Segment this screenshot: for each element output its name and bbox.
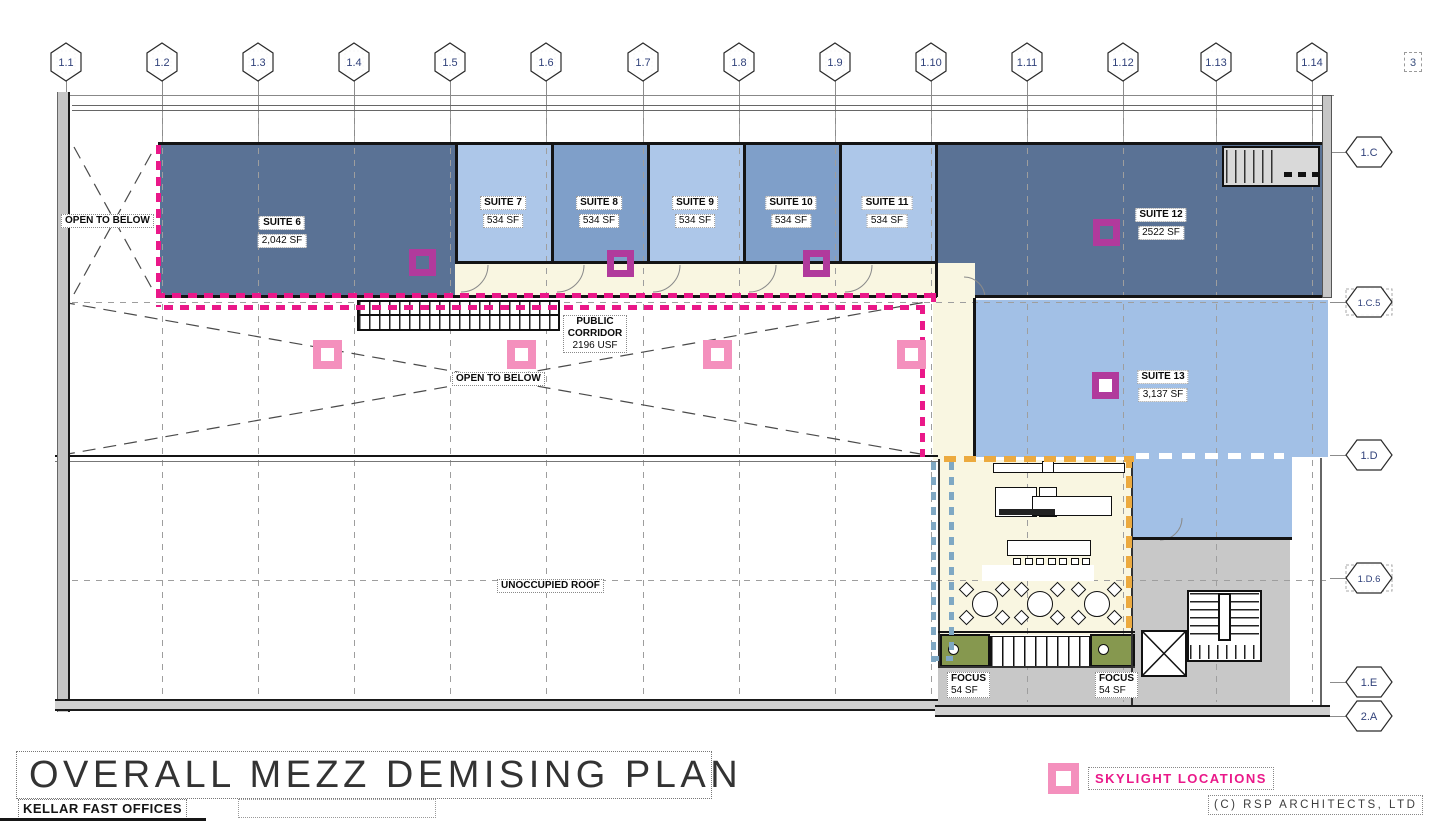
- sheet-number-tag: 3: [1404, 52, 1422, 72]
- wall-segment: [72, 110, 1330, 111]
- stair-dashed-edge: [1284, 172, 1318, 177]
- grid-column-bubble: 1.2: [145, 42, 179, 82]
- grid-line-vertical: [546, 112, 547, 702]
- unoccupied-roof-label: UNOCCUPIED ROOF: [497, 579, 604, 593]
- grid-column-label: 1.4: [346, 57, 361, 69]
- grid-line-vertical: [1123, 112, 1124, 702]
- demising-line-orange: [1126, 456, 1132, 636]
- stair-flight: [1231, 593, 1259, 641]
- wall-segment: [938, 631, 1135, 633]
- suite-8-name: SUITE 8: [576, 196, 622, 210]
- wall-segment: [55, 461, 938, 462]
- suite-6-label: SUITE 62,042 SF: [258, 212, 307, 248]
- suite-13-extension-region: [1133, 456, 1292, 540]
- stair-flight: [1190, 593, 1218, 641]
- grid-row-bubble: 2.A: [1345, 699, 1395, 733]
- focus-room-label: FOCUS 54 SF: [947, 672, 990, 698]
- grid-line-vertical: [739, 112, 740, 702]
- suite-13-area: 3,137 SF: [1139, 388, 1188, 402]
- focus-room-label: FOCUS 54 SF: [1095, 672, 1138, 698]
- demising-line-blue: [949, 462, 954, 654]
- grid-column-label: 1.9: [827, 57, 842, 69]
- suite-13-name: SUITE 13: [1137, 370, 1188, 384]
- grid-line-vertical: [162, 112, 163, 702]
- stair-rail: [357, 314, 560, 316]
- wall-segment: [839, 145, 842, 263]
- wall-segment: [58, 95, 1334, 96]
- grid-line-vertical: [835, 112, 836, 702]
- chair: [1036, 558, 1044, 565]
- grid-column-bubble: 1.10: [914, 42, 948, 82]
- copyright-note: (C) RSP ARCHITECTS, LTD: [1208, 795, 1423, 815]
- demising-line-blue: [931, 462, 936, 662]
- grid-row-leader: [1330, 716, 1346, 717]
- chair: [1013, 558, 1021, 565]
- wall-segment: [743, 145, 746, 263]
- skylight-marker: [897, 340, 926, 369]
- grid-column-bubble: 1.12: [1106, 42, 1140, 82]
- grid-row-leader: [1330, 682, 1346, 683]
- grid-column-bubble: 1.7: [626, 42, 660, 82]
- wall-segment: [72, 105, 1330, 106]
- project-name: KELLAR FAST OFFICES: [18, 799, 187, 819]
- grid-column-label: 1.1: [58, 57, 73, 69]
- chair: [1025, 558, 1033, 565]
- wall-segment: [938, 666, 1135, 668]
- focus-room-area: 54 SF: [951, 685, 986, 697]
- grid-row-label: 1.D: [1360, 450, 1377, 462]
- wall-segment: [975, 295, 1330, 298]
- wall-segment: [938, 459, 940, 668]
- suite-6-area: 2,042 SF: [258, 234, 307, 248]
- chair: [1048, 558, 1056, 565]
- elevator-shaft: [1141, 630, 1187, 677]
- suite-6-name: SUITE 6: [259, 216, 305, 230]
- drawing-title-box: OVERALL MEZZ DEMISING PLAN: [16, 751, 712, 799]
- chair: [1082, 558, 1090, 565]
- open-to-below-label: OPEN TO BELOW: [61, 214, 154, 228]
- wall-segment: [647, 145, 650, 263]
- grid-row-bubble: 1.C.5: [1345, 285, 1395, 319]
- demising-line-blue: [931, 656, 953, 661]
- grid-column-label: 1.7: [635, 57, 650, 69]
- open-to-below-label: OPEN TO BELOW: [452, 372, 545, 386]
- grid-row-bubble: 1.C: [1345, 135, 1395, 169]
- focus-room-area: 54 SF: [1099, 685, 1134, 697]
- grid-column-label: 1.12: [1112, 57, 1133, 69]
- stair-landing: [1218, 593, 1231, 641]
- suite-12-label: SUITE 122522 SF: [1135, 204, 1186, 240]
- grid-row-bubble: 1.D: [1345, 438, 1395, 472]
- grid-line-horizontal: [60, 580, 1332, 581]
- suite-10-label: SUITE 10534 SF: [765, 192, 816, 228]
- wall-segment: [973, 298, 976, 458]
- skylight-marker: [703, 340, 732, 369]
- drawing-title: OVERALL MEZZ DEMISING PLAN: [17, 752, 711, 798]
- skylight-legend-icon: [1048, 763, 1079, 794]
- grid-row-label: 1.E: [1361, 677, 1378, 689]
- suite-11-label: SUITE 11534 SF: [862, 192, 913, 228]
- suite-7-name: SUITE 7: [480, 196, 526, 210]
- suite-9-label: SUITE 9534 SF: [672, 192, 718, 228]
- chair: [1059, 558, 1067, 565]
- focus-table: [1098, 644, 1109, 655]
- chair: [1071, 558, 1079, 565]
- grid-column-bubble: 1.8: [722, 42, 756, 82]
- grid-line-horizontal: [60, 302, 1332, 303]
- focus-room-name: FOCUS: [1099, 673, 1134, 684]
- suite-10-area: 534 SF: [771, 214, 811, 228]
- floor-highlight: [982, 565, 1094, 581]
- wall-segment: [935, 145, 938, 297]
- grid-column-bubble: 1.9: [818, 42, 852, 82]
- suite-7-area: 534 SF: [483, 214, 523, 228]
- counter-edge: [999, 509, 1055, 515]
- public-corridor-name: PUBLIC CORRIDOR: [568, 316, 622, 339]
- demising-line-magenta: [164, 305, 925, 310]
- grid-row-leader: [1330, 302, 1346, 303]
- focus-room-region: [1090, 634, 1135, 667]
- grid-line-vertical: [258, 112, 259, 702]
- grid-column-bubble: 1.1: [49, 42, 83, 82]
- grid-column-bubble: 1.4: [337, 42, 371, 82]
- kitchen-counter: [993, 463, 1125, 473]
- suite-9-name: SUITE 9: [672, 196, 718, 210]
- floor-plan-sheet: SUITE 62,042 SFSUITE 7534 SFSUITE 8534 S…: [0, 0, 1437, 838]
- grid-row-leader: [1330, 455, 1346, 456]
- wall-segment: [455, 145, 458, 263]
- grid-column-bubble: 1.3: [241, 42, 275, 82]
- demising-line-magenta: [156, 145, 161, 307]
- wall-segment: [455, 261, 935, 264]
- grid-column-label: 1.3: [250, 57, 265, 69]
- corridor-lobby-region: [933, 297, 975, 460]
- round-table: [1027, 591, 1053, 617]
- grid-column-label: 1.5: [442, 57, 457, 69]
- grid-row-label: 2.A: [1361, 711, 1378, 723]
- grid-column-bubble: 1.6: [529, 42, 563, 82]
- grid-line-vertical: [354, 112, 355, 702]
- grid-column-bubble: 1.5: [433, 42, 467, 82]
- grid-row-label: 1.D.6: [1358, 574, 1381, 585]
- public-corridor-region: [455, 263, 975, 297]
- wall-segment: [1320, 458, 1322, 710]
- exterior-wall-right: [1322, 95, 1332, 298]
- demising-line-white: [1136, 453, 1284, 459]
- suite-12-area: 2522 SF: [1138, 226, 1184, 240]
- grid-row-leader: [1330, 152, 1346, 153]
- title-block-extension-box: [238, 799, 436, 818]
- grid-row-label: 1.C.5: [1358, 298, 1381, 309]
- suite-8-label: SUITE 8534 SF: [576, 192, 622, 228]
- grid-line-vertical: [1027, 112, 1028, 702]
- grid-column-label: 1.10: [920, 57, 941, 69]
- suite-11-area: 534 SF: [867, 214, 907, 228]
- suite-13-label: SUITE 133,137 SF: [1137, 366, 1188, 402]
- skylight-marker: [313, 340, 342, 369]
- long-table: [1007, 540, 1091, 556]
- grid-line-vertical: [643, 112, 644, 702]
- skylight-legend-label: SKYLIGHT LOCATIONS: [1088, 767, 1274, 790]
- grid-column-label: 1.14: [1301, 57, 1322, 69]
- wall-segment: [551, 145, 554, 263]
- skylight-marker: [803, 250, 830, 277]
- suite-11-name: SUITE 11: [862, 196, 913, 210]
- grid-column-bubble: 1.11: [1010, 42, 1044, 82]
- grid-column-label: 1.2: [154, 57, 169, 69]
- demising-line-magenta: [920, 305, 925, 457]
- grid-column-label: 1.11: [1017, 57, 1038, 69]
- stair-treads: [1226, 150, 1280, 183]
- skylight-marker: [507, 340, 536, 369]
- demising-line-magenta: [156, 293, 937, 298]
- title-underline: [0, 818, 206, 821]
- exterior-wall-left: [57, 92, 70, 712]
- round-table: [1084, 591, 1110, 617]
- suite-9-area: 534 SF: [675, 214, 715, 228]
- grid-line-vertical: [450, 112, 451, 702]
- grid-column-bubble: 1.13: [1199, 42, 1233, 82]
- exterior-wall-bottom: [935, 705, 1330, 717]
- round-table: [972, 591, 998, 617]
- grid-column-bubble: 1.14: [1295, 42, 1329, 82]
- stair-treads: [1190, 645, 1259, 659]
- grid-row-bubble: 1.D.6: [1345, 561, 1395, 595]
- wall-segment: [1133, 537, 1292, 540]
- grid-column-label: 1.8: [731, 57, 746, 69]
- suite-12-name: SUITE 12: [1135, 208, 1186, 222]
- sink: [1042, 461, 1054, 473]
- public-corridor-label: PUBLIC CORRIDOR 2196 USF: [563, 315, 627, 353]
- grid-row-leader: [1330, 578, 1346, 579]
- skylight-marker: [1092, 372, 1119, 399]
- suite-10-name: SUITE 10: [765, 196, 816, 210]
- suite-7-label: SUITE 7534 SF: [480, 192, 526, 228]
- locker-bank: [990, 636, 1090, 667]
- grid-column-label: 1.6: [538, 57, 553, 69]
- grid-row-bubble: 1.E: [1345, 665, 1395, 699]
- skylight-marker: [409, 249, 436, 276]
- demising-line-magenta: [931, 293, 936, 307]
- focus-room-name: FOCUS: [951, 673, 986, 684]
- skylight-marker: [607, 250, 634, 277]
- wall-segment: [55, 455, 938, 457]
- public-corridor-area: 2196 USF: [567, 340, 623, 352]
- demising-line-orange: [944, 456, 1134, 462]
- skylight-marker: [1093, 219, 1120, 246]
- grid-line-vertical: [1312, 112, 1313, 702]
- grid-column-label: 1.13: [1205, 57, 1226, 69]
- grid-row-label: 1.C: [1360, 147, 1377, 159]
- suite-8-area: 534 SF: [579, 214, 619, 228]
- exterior-wall-bottom: [55, 699, 938, 711]
